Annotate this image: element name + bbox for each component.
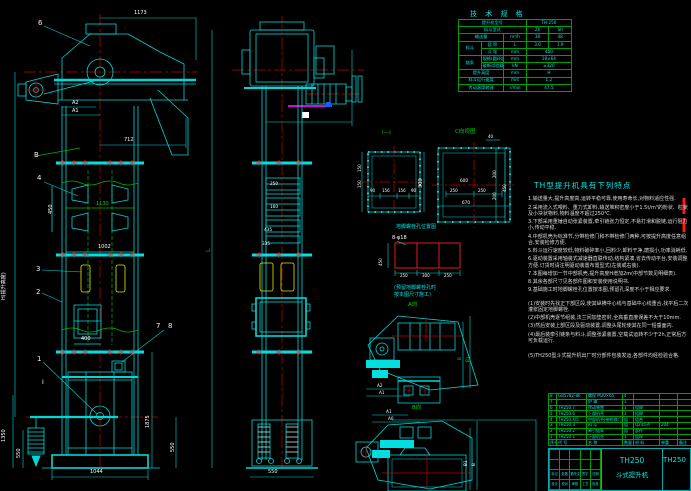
bom-header-row: 序号代 号名 称数量材 料单重备注 bbox=[549, 440, 691, 446]
view-b-label: B向 bbox=[412, 406, 421, 412]
callout-b: B bbox=[34, 152, 39, 159]
dim-da-b: B bbox=[458, 357, 462, 360]
dim-a1: A1 bbox=[72, 109, 79, 114]
dim-sc-40: 40 bbox=[488, 135, 493, 139]
view-a-label: A向 bbox=[408, 303, 417, 309]
callout-1: 1 bbox=[37, 356, 41, 363]
dim-si-b2: 156 bbox=[398, 189, 406, 193]
feature-line: 4.中部机壳为标准节,分带检修门和不带检修门两种,可按提升高度任意组合,安装检修… bbox=[528, 234, 691, 247]
feature-line: 5.料斗运行速度较低,物料破碎率小,回料少,卸料干净,磨损小,功率消耗低. bbox=[528, 248, 691, 254]
dim-sc-200b: 200 bbox=[493, 192, 497, 200]
side-elevation-view bbox=[232, 16, 364, 477]
anchor-plan-caption: 地脚螺栓孔位置图 bbox=[396, 225, 436, 230]
dim-sc-250a: 250 bbox=[450, 189, 458, 193]
install-note: (1)安装时先找正下部区段,使其纵横中心线与基础中心线重合,找平后二次灌浆固定地… bbox=[528, 301, 691, 314]
dim-base-width: 1044 bbox=[90, 470, 103, 475]
anchor-note-2: 按本图尺寸施工) bbox=[394, 293, 431, 298]
final-note: (5)TH250型斗式提升机出厂时分部件包装发运,各部件均经检验合格. bbox=[528, 353, 691, 359]
revision-table: 标记处数更改文件号签字日期 设计校对审核工艺批准 bbox=[549, 449, 601, 490]
bom-table: 8GB5782-86螺栓 M20×654 7护 罩1 6TH250.7传动装置1… bbox=[548, 393, 691, 446]
title-block: 标记处数更改文件号签字日期 设计校对审核工艺批准 TH250 斗式提升机 TH2… bbox=[548, 448, 691, 491]
install-note: (3)然后安装上部区段及驱动装置,调整头尾轮使其在同一铅垂面内. bbox=[528, 323, 691, 329]
dim-db-b: B bbox=[472, 463, 476, 466]
dim-anchor-b2: 250 bbox=[444, 274, 452, 278]
section-i-label: I—I bbox=[382, 131, 391, 137]
dim-da-a2: A2 bbox=[377, 384, 383, 388]
callout-6: 6 bbox=[38, 20, 42, 27]
dim-left-550: 550 bbox=[17, 448, 22, 458]
callout-8: 8 bbox=[168, 323, 172, 330]
dim-left-1350: 1350 bbox=[2, 429, 7, 442]
anchor-bolt-plan bbox=[388, 241, 460, 276]
revision-labels: 标记处数更改文件号签字日期 bbox=[550, 470, 601, 480]
anchor-note-1: (预留地脚螺栓孔时 bbox=[394, 286, 436, 291]
install-note: (4)最后装牵引链条与料斗,调整张紧装置,空载试运转不少于2h,正常后方可负载运… bbox=[528, 332, 691, 345]
feature-title: TH型提升机具有下列特点 bbox=[534, 181, 691, 190]
dim-a2: A2 bbox=[72, 101, 79, 106]
install-note: (2)中部机壳逐节组装,法兰间加垫密封,全高垂直度误差不大于10mm. bbox=[528, 315, 691, 321]
callout-7: 7 bbox=[156, 323, 160, 330]
dim-mid-335: 335 bbox=[262, 242, 270, 246]
dim-sc-250b: 250 bbox=[478, 189, 486, 193]
dim-bucket-pitch: 450 bbox=[49, 204, 54, 214]
feature-notes-block: TH型提升机具有下列特点 1.输送量大,提升高度高,运转平稳可靠,使用寿命长,对… bbox=[528, 181, 691, 393]
drive-arrangement-view-b bbox=[356, 415, 536, 491]
spec-label: 提升机型号 bbox=[459, 20, 527, 27]
drawing-number: TH250 bbox=[663, 449, 691, 490]
dim-boot-1875: 1875 bbox=[146, 415, 151, 428]
dim-casing-1130: 1130 bbox=[96, 202, 109, 207]
dim-da-a1: A1 bbox=[379, 391, 385, 395]
dim-sc-600: 600 bbox=[460, 179, 468, 183]
dim-mid-250: 250 bbox=[270, 182, 278, 186]
dim-mid-435: 435 bbox=[264, 228, 272, 232]
dim-head-width: 1173 bbox=[134, 11, 147, 16]
feature-line: 7.本图每增加一节中部机壳,提升高度H增加2m(中部节数见明细表). bbox=[528, 271, 691, 277]
dim-db-a0: A0 bbox=[388, 417, 394, 421]
cad-canvas[interactable]: 技 术 规 格 提升机型号TH 250 料斗型式ZhSh 输送量m³/h3048… bbox=[0, 0, 691, 491]
dim-db-a1: A1 bbox=[386, 410, 392, 414]
feature-line: 3.下部采用重锤自动张紧装置,牵引链张力恒定,不易打滑和脱链,运行阻力小,传动平… bbox=[528, 219, 691, 232]
dim-anchor-450: 450 bbox=[379, 258, 383, 266]
dim-door-width: 400 bbox=[81, 337, 91, 342]
dim-si-300: 300 bbox=[419, 178, 424, 188]
drawing-model: TH250 bbox=[602, 456, 662, 465]
feature-line: 6.驱动装置采用轴装式减速器直联传动,结构紧凑,省去传动平台,安装调整方便.订货… bbox=[528, 256, 691, 269]
dim-casing-1002: 1002 bbox=[98, 245, 111, 250]
callout-4: 4 bbox=[37, 175, 41, 182]
signature-labels: 设计校对审核工艺批准 bbox=[550, 480, 601, 490]
dim-anchor-b1: 300 bbox=[422, 274, 430, 278]
dim-si-b0: 90 bbox=[370, 189, 375, 193]
section-view-ii bbox=[362, 146, 426, 218]
feature-line: 2.采用流入式喂料、重力式卸料,输送堆积密度小于1.5t/m³的粉状、粒状及小块… bbox=[528, 205, 691, 218]
feature-line: 1.输送量大,提升高度高,运转平稳可靠,使用寿命长,对物料适应性强. bbox=[528, 196, 691, 202]
dim-mid-base: 550 bbox=[268, 470, 278, 475]
front-elevation-view bbox=[13, 14, 212, 480]
anchor-bolt-callout: 8-φ18 bbox=[392, 236, 407, 241]
dim-mid-160: 160 bbox=[270, 205, 278, 209]
dim-boot-550: 550 bbox=[171, 442, 176, 452]
spec-table-title: 技 术 规 格 bbox=[470, 9, 526, 19]
dim-spout-width: 712 bbox=[124, 138, 134, 143]
callout-3: 3 bbox=[36, 266, 40, 273]
dim-si-b3: 90 bbox=[411, 189, 416, 193]
feature-line: 9.基础施工时地脚螺栓孔位置按本图,预留孔深度不小于相应要求. bbox=[528, 287, 691, 293]
drawing-name-block: TH250 斗式提升机 bbox=[601, 449, 663, 490]
dim-sc-450: 450 bbox=[503, 184, 507, 192]
dim-si-150a: 150 bbox=[358, 164, 362, 172]
dim-db-b1: B1 bbox=[464, 460, 468, 466]
dim-si-150b: 150 bbox=[358, 180, 362, 188]
section-mark-i: I bbox=[42, 380, 44, 386]
dim-total-length: L bbox=[206, 249, 212, 252]
dim-sc-670: 670 bbox=[462, 201, 470, 205]
drawing-product-name: 斗式提升机 bbox=[602, 469, 662, 479]
dim-sc-200a: 200 bbox=[493, 170, 497, 178]
dim-anchor-b0: 250 bbox=[400, 274, 408, 278]
feature-line: 8.其余各部尺寸见各部件图和安装使用说明书. bbox=[528, 279, 691, 285]
dim-si-b1: 156 bbox=[382, 189, 390, 193]
spec-table: 提升机型号TH 250 料斗型式ZhSh 输送量m³/h3048 料斗容 积L3… bbox=[458, 19, 572, 92]
lift-height-note: H(提升高度) bbox=[2, 272, 7, 300]
dim-da-b1: B1 bbox=[466, 356, 470, 362]
section-c-label: C向视图 bbox=[455, 130, 475, 136]
callout-2: 2 bbox=[36, 289, 40, 296]
